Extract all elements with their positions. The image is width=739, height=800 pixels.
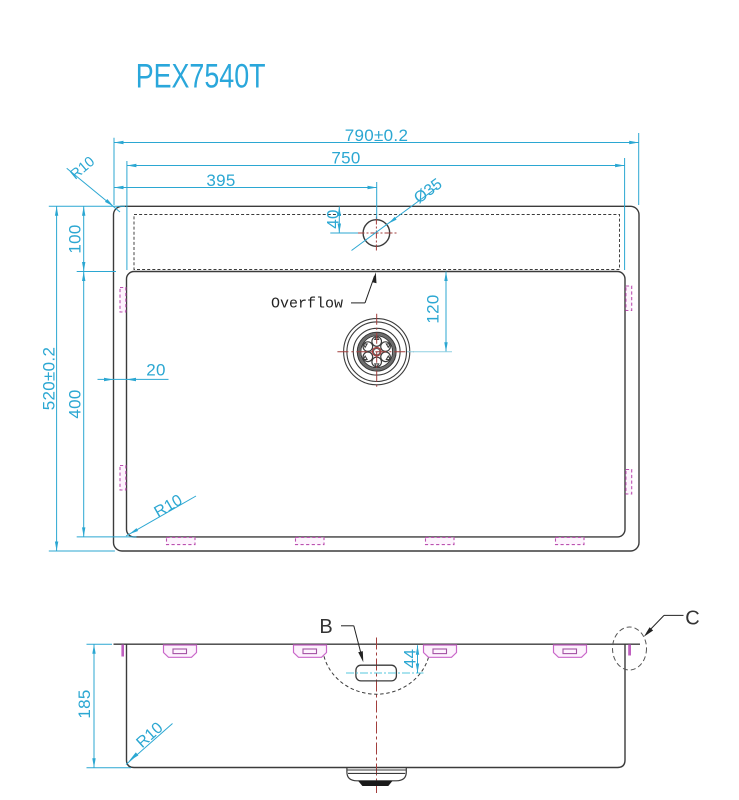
svg-text:40: 40: [324, 209, 343, 229]
svg-text:B: B: [319, 616, 332, 638]
svg-text:790±0.2: 790±0.2: [345, 126, 408, 145]
svg-text:44: 44: [401, 649, 420, 669]
svg-text:395: 395: [206, 171, 235, 190]
svg-text:R10: R10: [67, 154, 98, 183]
svg-text:520±0.2: 520±0.2: [39, 347, 58, 410]
svg-text:PEX7540T: PEX7540T: [136, 58, 266, 96]
svg-text:20: 20: [146, 361, 166, 380]
svg-text:C: C: [685, 608, 699, 630]
svg-text:R10: R10: [152, 492, 186, 521]
svg-text:750: 750: [331, 149, 360, 168]
svg-text:400: 400: [66, 389, 85, 418]
svg-text:Overflow: Overflow: [271, 296, 343, 313]
svg-text:R10: R10: [133, 719, 166, 751]
svg-text:100: 100: [66, 224, 85, 253]
svg-text:185: 185: [75, 689, 94, 718]
svg-text:120: 120: [424, 294, 443, 323]
